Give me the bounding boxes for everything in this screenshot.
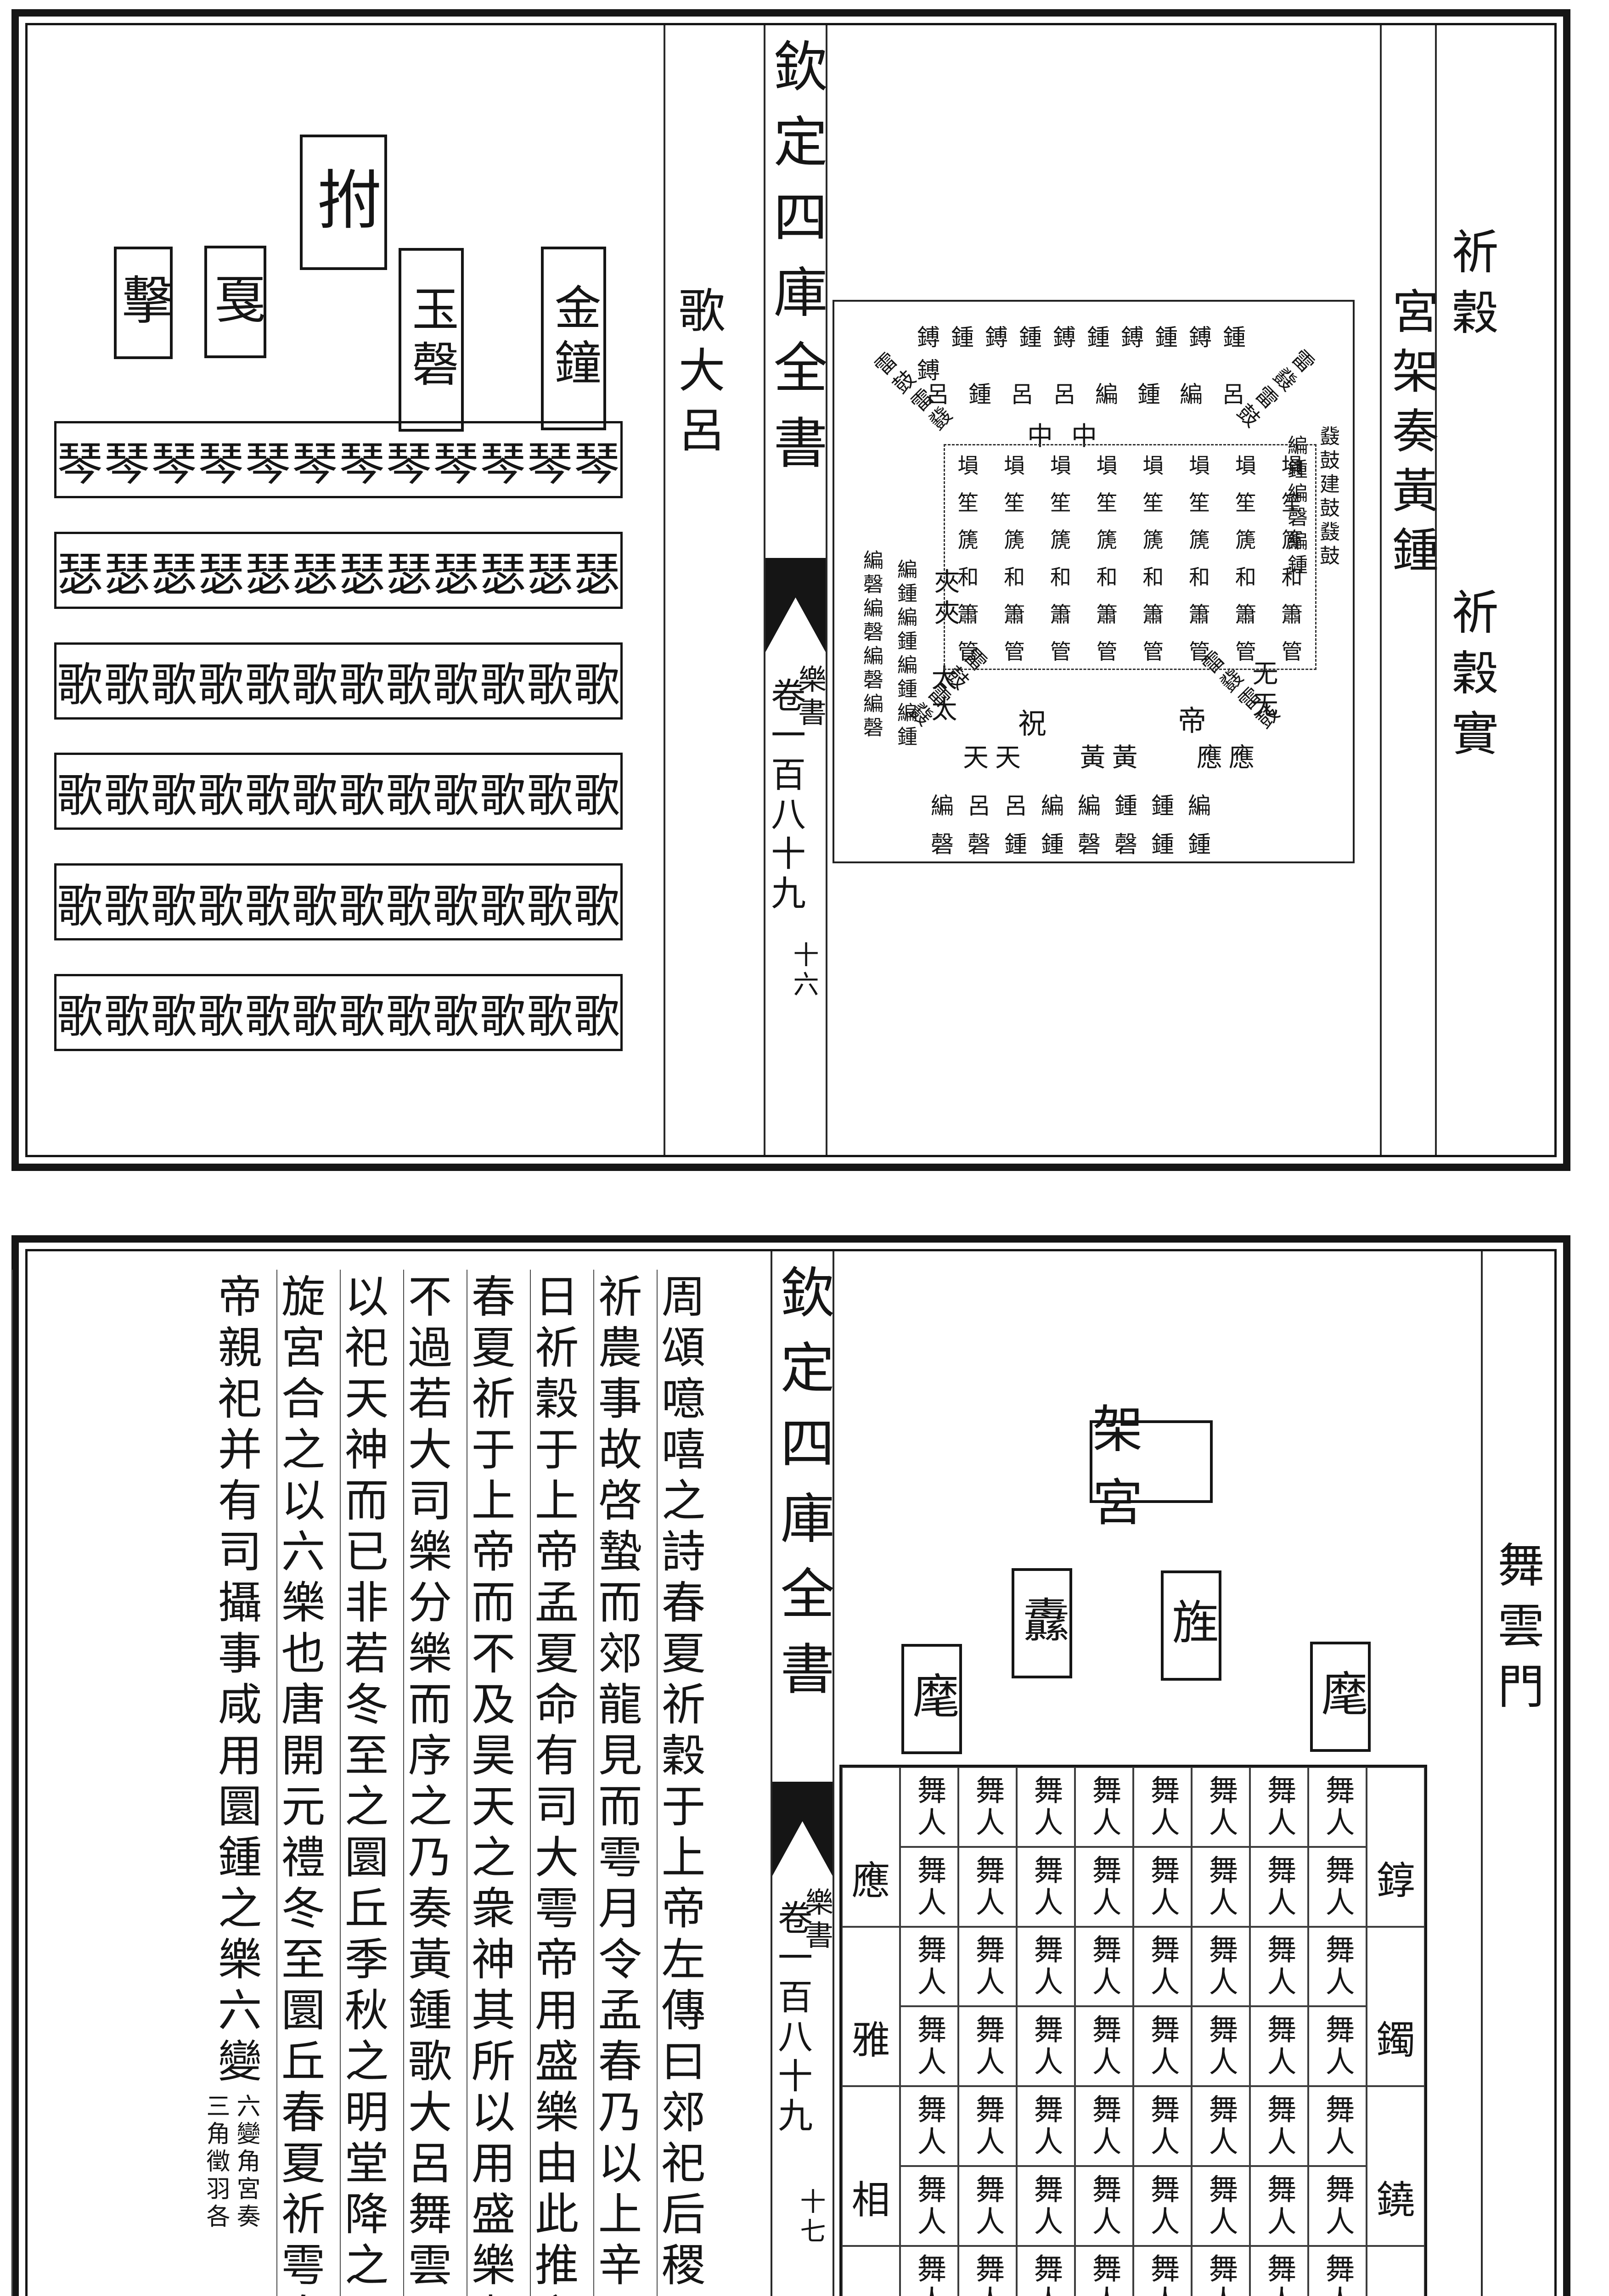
dancer-cell-text: 舞人 (1265, 2253, 1294, 2296)
spine-chapter: 卷一百八十九 (768, 677, 803, 914)
dancer-cell-text: 舞人 (1090, 1855, 1119, 1919)
text-column: 日祈穀于上帝孟夏命有司大雩帝用盛樂由此推之 (530, 1270, 593, 2296)
instrument-char: 瑟 (57, 537, 103, 603)
instrument-char: 歌 (57, 758, 103, 825)
text-column: 以祀天神而已非若冬至之圜丘季秋之明堂降之以 (340, 1270, 403, 2296)
dancer-cell-text: 舞人 (1265, 1855, 1294, 1919)
dancer-cell: 舞人 (1308, 1767, 1367, 1847)
diagram-grid-char: 笙 (957, 486, 979, 517)
instrument-char: 歌 (198, 979, 244, 1046)
diagram-grid-char: 和 (1282, 561, 1303, 591)
dancer-cell-text: 舞人 (1148, 2174, 1177, 2238)
dancer-cell-text: 舞人 (973, 2174, 1002, 2238)
dancer-cell-text: 舞人 (1090, 2174, 1119, 2238)
diagram-grid-char: 簫 (1282, 598, 1303, 628)
diagram-grid-char: 篪 (1235, 523, 1256, 554)
dancer-cell-text: 舞人 (1031, 2253, 1061, 2296)
diagram-row-text: 鎛鍾鎛鍾鎛鍾鎛鍾鎛鍾鎛 (917, 319, 1284, 385)
scanned-book-page: 祈穀 祈穀實 宮架奏黃鍾 鎛鍾鎛鍾鎛鍾鎛鍾鎛鍾鎛 呂鍾呂呂編鍾編呂 雷鼓雷鼗 雷… (0, 0, 1609, 2296)
instrument-char: 琴 (527, 427, 573, 493)
diagram-grid-char: 簫 (957, 598, 979, 628)
diagram-grid-row: 塤塤塤塤塤塤塤塤 (945, 449, 1315, 479)
diagram-bottom-row-chimes: 磬磬鍾鍾磬磬鍾鍾 (931, 826, 1279, 859)
instrument-char: 瑟 (339, 537, 385, 603)
instrument-char: 歌 (292, 979, 338, 1046)
dancer-cell-text: 舞人 (973, 2253, 1002, 2296)
instrument-char: 琴 (386, 427, 432, 493)
text-column: 旋宮合之以六樂也唐開元禮冬至圜丘春夏祈雩皇 (276, 1270, 340, 2296)
bottom-page-inner-frame: 舞雲門 架宮 麾 纛 旌 麾 應雅相牘錞鐲鐃鐸舞人舞人舞人舞人舞人舞人舞人舞人舞… (25, 1249, 1557, 2296)
dancer-cell: 舞人 (1133, 1927, 1192, 2007)
instrument-char: 琴 (151, 427, 197, 493)
flag-box-hui-right: 麾 (1310, 1642, 1371, 1752)
diagram-grid-row: 和和和和和和和和 (945, 561, 1315, 591)
diagram-grid-char: 塤 (1235, 449, 1256, 479)
instrument-char: 歌 (433, 869, 479, 935)
dancer-cell-text: 舞人 (915, 2014, 944, 2078)
flag-text: 麾 (908, 1671, 955, 1727)
diagram-grid-char: 管 (1189, 635, 1210, 665)
text-column: 春夏祈于上帝而不及昊天之衆神其所以用盛樂者 (467, 1270, 530, 2296)
dancer-cell-text: 舞人 (1090, 1934, 1119, 1998)
instrument-char: 歌 (198, 869, 244, 935)
dancer-cell: 舞人 (1250, 2006, 1308, 2086)
classical-text-columns: 周頌噫嘻之詩春夏祈穀于上帝左傳曰郊祀后稷以祈農事故啓蟄而郊龍見而雩月令孟春乃以上… (37, 1270, 720, 2296)
instrument-char: 歌 (104, 979, 150, 1046)
diagram-grid-char: 和 (1004, 561, 1025, 591)
text-column: 祈農事故啓蟄而郊龍見而雩月令孟春乃以上辛元 (593, 1270, 657, 2296)
divider-diagram-title (1380, 25, 1382, 1155)
diagram-grid-char: 塤 (1097, 449, 1118, 479)
instrument-char: 歌 (480, 758, 526, 825)
interlinear-note: 六變角宮奏三角徵羽各 (13, 2093, 258, 2231)
dancer-cell: 舞人 (1075, 2246, 1133, 2296)
dancer-cell-text: 舞人 (1031, 2094, 1061, 2158)
diagram-grid-char: 篪 (1097, 523, 1118, 554)
dancer-cell-text: 舞人 (1206, 2014, 1236, 2078)
instrument-char: 歌 (527, 869, 573, 935)
instrument-char: 歌 (574, 869, 620, 935)
diagram-grid-char: 笙 (1189, 486, 1210, 517)
grid-right-label: 鐃 (1367, 2086, 1425, 2246)
label-text: 玉磬 (408, 285, 455, 395)
diagram-grid-char: 笙 (1050, 486, 1071, 517)
dancer-cell-text: 舞人 (1323, 2253, 1352, 2296)
dancer-cell: 舞人 (1308, 2166, 1367, 2246)
instrument-char: 琴 (574, 427, 620, 493)
instrument-char: 歌 (527, 758, 573, 825)
diagram-right-drum-column: 鼗鼓建鼓鼗鼓 (1317, 426, 1338, 569)
dancer-cell: 舞人 (1192, 1847, 1250, 1927)
grid-left-label: 牘 (842, 2246, 900, 2296)
spine-page-number: 十七 (798, 2188, 823, 2247)
fishtail-mark (772, 1782, 833, 1876)
spine-page-number: 十六 (791, 941, 816, 1000)
dancer-cell-text: 舞人 (915, 1775, 944, 1839)
top-page-block: 祈穀 祈穀實 宮架奏黃鍾 鎛鍾鎛鍾鎛鍾鎛鍾鎛鍾鎛 呂鍾呂呂編鍾編呂 雷鼓雷鼗 雷… (11, 9, 1570, 1171)
dancer-cell: 舞人 (1250, 1927, 1308, 2007)
instrument-char: 歌 (198, 758, 244, 825)
diagram-row-text: 編呂呂編編鍾鍾編 (931, 788, 1225, 821)
instrument-char: 歌 (574, 979, 620, 1046)
dancer-cell: 舞人 (1192, 2166, 1250, 2246)
instrument-row-歌: 歌歌歌歌歌歌歌歌歌歌歌歌 (54, 974, 623, 1051)
instrument-char: 歌 (433, 647, 479, 714)
instrument-char: 歌 (480, 979, 526, 1046)
diagram-grid-char: 篪 (1142, 523, 1164, 554)
instrument-char: 歌 (386, 869, 432, 935)
dancer-cell: 舞人 (958, 1847, 1017, 1927)
dancer-cell: 舞人 (958, 2246, 1017, 2296)
diagram-pitch-pair: 黃黃 (1080, 737, 1144, 774)
diagram-zhu-label: 祝 (1018, 700, 1046, 742)
instrument-char: 瑟 (527, 537, 573, 603)
label-text: 金鐘 (550, 283, 597, 394)
dancer-cell-text: 舞人 (1031, 2174, 1061, 2238)
dancer-cell: 舞人 (1075, 1767, 1133, 1847)
dancer-cell-text: 舞人 (1206, 1775, 1236, 1839)
instrument-char: 歌 (292, 758, 338, 825)
instrument-char: 琴 (480, 427, 526, 493)
dancer-cell: 舞人 (1133, 2006, 1192, 2086)
grid-right-label: 錞 (1367, 1767, 1425, 1927)
label-box-yuqing: 玉磬 (399, 248, 464, 432)
instrument-char: 瑟 (198, 537, 244, 603)
instrument-char: 歌 (433, 758, 479, 825)
dancer-cell-text: 舞人 (1031, 1775, 1061, 1839)
dancer-cell-text: 舞人 (915, 2253, 944, 2296)
dancer-cell-text: 舞人 (1148, 2094, 1177, 2158)
dancer-cell: 舞人 (1075, 2086, 1133, 2166)
diagram-grid-char: 管 (1004, 635, 1025, 665)
dancer-cell-text: 舞人 (1323, 1855, 1352, 1919)
label-text: 拊 (311, 166, 376, 239)
dancer-cell-text: 舞人 (1206, 2174, 1236, 2238)
dancer-cell: 舞人 (1017, 2006, 1075, 2086)
spine-chapter: 卷一百八十九 (775, 1900, 810, 2137)
dancer-cell: 舞人 (1075, 2006, 1133, 2086)
instrument-char: 歌 (339, 869, 385, 935)
instrument-char: 瑟 (386, 537, 432, 603)
instrument-char: 歌 (245, 869, 291, 935)
dancer-cell: 舞人 (958, 2086, 1017, 2166)
dancer-cell: 舞人 (900, 2006, 958, 2086)
box-gongjia-text: 架宮 (1092, 1388, 1210, 1535)
dancer-cell-text: 舞人 (1031, 1934, 1061, 1998)
dancer-cell-text: 舞人 (915, 1855, 944, 1919)
dancer-cell-text: 舞人 (1206, 1855, 1236, 1919)
diagram-bottom-row-bells: 編呂呂編編鍾鍾編 (931, 788, 1279, 821)
dancer-cell-text: 舞人 (1031, 1855, 1061, 1919)
diagram-grid-char: 和 (1097, 561, 1118, 591)
diagram-grid-char: 和 (1050, 561, 1071, 591)
diagram-di-label: 帝 (1178, 698, 1206, 739)
margin-label-qigushi: 祈穀實 (1447, 588, 1494, 770)
instrument-char: 歌 (104, 647, 150, 714)
bottom-page-block: 舞雲門 架宮 麾 纛 旌 麾 應雅相牘錞鐲鐃鐸舞人舞人舞人舞人舞人舞人舞人舞人舞… (11, 1235, 1570, 2296)
instrument-char: 琴 (57, 427, 103, 493)
label-box-jinzhong: 金鐘 (541, 247, 606, 430)
label-box-ji: 擊 (114, 247, 173, 359)
diagram-grid-char: 管 (1235, 635, 1256, 665)
note-column: 六變角宮奏 (234, 2093, 258, 2231)
diagram-grid-char: 和 (957, 561, 979, 591)
instrument-char: 瑟 (433, 537, 479, 603)
dancer-cell-text: 舞人 (1265, 2094, 1294, 2158)
diagram-grid-char: 簫 (1097, 598, 1118, 628)
instrument-row-歌: 歌歌歌歌歌歌歌歌歌歌歌歌 (54, 753, 623, 830)
diagram-grid-char: 笙 (1097, 486, 1118, 517)
diagram-bottom-pitch-pairs: 天天黃黃應應 (963, 737, 1261, 774)
divider-right-margin (1435, 25, 1437, 1155)
diagram-grid-row: 篪篪篪篪篪篪篪篪 (945, 523, 1315, 554)
dancer-cell: 舞人 (1133, 2246, 1192, 2296)
diagram-grid-char: 笙 (1004, 486, 1025, 517)
diagram-row-text: 磬磬鍾鍾磬磬鍾鍾 (931, 826, 1225, 859)
instrument-char: 瑟 (480, 537, 526, 603)
dancer-cell: 舞人 (1192, 1767, 1250, 1847)
dancer-cell: 舞人 (1017, 2086, 1075, 2166)
dancer-cell-text: 舞人 (973, 1934, 1002, 1998)
instrument-char: 歌 (198, 647, 244, 714)
label-text: 戛 (210, 272, 261, 332)
diagram-grid-row: 簫簫簫簫簫簫簫簫 (945, 598, 1315, 628)
instrument-char: 歌 (245, 758, 291, 825)
dancer-cell: 舞人 (958, 1767, 1017, 1847)
instrument-row-歌: 歌歌歌歌歌歌歌歌歌歌歌歌 (54, 642, 623, 720)
diagram-grid-char: 管 (1142, 635, 1164, 665)
dancer-cell: 舞人 (1017, 1767, 1075, 1847)
diagram-pitch-pair: 天天 (963, 737, 1027, 774)
dancer-cell-text: 舞人 (1148, 1934, 1177, 1998)
dancer-cell: 舞人 (958, 2006, 1017, 2086)
left-page-title: 歌大呂 (674, 286, 721, 465)
dancer-cell: 舞人 (1192, 1927, 1250, 2007)
diagram-grid-char: 篪 (1282, 523, 1303, 554)
flag-text: 麾 (1317, 1669, 1364, 1724)
flag-text: 纛 (1018, 1596, 1065, 1651)
dancer-cell-text: 舞人 (1323, 2094, 1352, 2158)
dancer-cell-text: 舞人 (1265, 2014, 1294, 2078)
dancer-cell: 舞人 (1017, 1847, 1075, 1927)
grid-left-label: 相 (842, 2086, 900, 2246)
instrument-char: 歌 (292, 647, 338, 714)
dancer-cell-text: 舞人 (1148, 2014, 1177, 2078)
dancer-cell: 舞人 (900, 1847, 958, 1927)
text-column: 不過若大司樂分樂而序之乃奏黃鍾歌大呂舞雲門 (403, 1270, 467, 2296)
diagram-grid-char: 塤 (1142, 449, 1164, 479)
instrument-char: 歌 (151, 869, 197, 935)
instrument-rack-diagram: 鎛鍾鎛鍾鎛鍾鎛鍾鎛鍾鎛 呂鍾呂呂編鍾編呂 雷鼓雷鼗 雷鼗雷鼓 雷鼓雷鼗 雷鼗雷鼓… (833, 300, 1355, 863)
diagram-grid-char: 管 (1282, 635, 1303, 665)
instrument-char: 瑟 (151, 537, 197, 603)
top-page-inner-frame: 祈穀 祈穀實 宮架奏黃鍾 鎛鍾鎛鍾鎛鍾鎛鍾鎛鍾鎛 呂鍾呂呂編鍾編呂 雷鼓雷鼗 雷… (25, 23, 1557, 1157)
instrument-char: 歌 (527, 647, 573, 714)
dancer-cell-text: 舞人 (1323, 2174, 1352, 2238)
diagram-grid-char: 塤 (1282, 449, 1303, 479)
dancer-cell: 舞人 (1075, 2166, 1133, 2246)
dancer-cell-text: 舞人 (1323, 2014, 1352, 2078)
instrument-char: 歌 (104, 758, 150, 825)
dancer-cell-text: 舞人 (1090, 2094, 1119, 2158)
instrument-char: 歌 (151, 979, 197, 1046)
instrument-char: 琴 (292, 427, 338, 493)
diagram-left-bell-column: 編鍾編鍾編鍾編鍾 (895, 559, 915, 750)
note-column: 三角徵羽各 (204, 2093, 228, 2231)
dancer-cell-text: 舞人 (973, 1855, 1002, 1919)
diagram-grid-char: 和 (1235, 561, 1256, 591)
dancer-cell-text: 舞人 (1090, 1775, 1119, 1839)
spine-title: 欽定四庫全書 (769, 38, 823, 490)
dancer-cell: 舞人 (1308, 1847, 1367, 1927)
margin-label-qigu: 祈穀 (1447, 227, 1494, 349)
instrument-row-瑟: 瑟瑟瑟瑟瑟瑟瑟瑟瑟瑟瑟瑟 (54, 532, 623, 609)
diagram-grid-row: 管管管管管管管管 (945, 635, 1315, 665)
dancer-cell-text: 舞人 (1323, 1775, 1352, 1839)
instrument-char: 瑟 (245, 537, 291, 603)
diagram-grid-char: 管 (1050, 635, 1071, 665)
dancer-cell: 舞人 (1017, 2166, 1075, 2246)
dancer-cell: 舞人 (1308, 1927, 1367, 2007)
diagram-grid-char: 簫 (1189, 598, 1210, 628)
instrument-row-歌: 歌歌歌歌歌歌歌歌歌歌歌歌 (54, 863, 623, 940)
dancer-cell: 舞人 (1250, 1847, 1308, 1927)
dancer-cell: 舞人 (900, 1927, 958, 2007)
instrument-rows: 琴琴琴琴琴琴琴琴琴琴琴琴瑟瑟瑟瑟瑟瑟瑟瑟瑟瑟瑟瑟歌歌歌歌歌歌歌歌歌歌歌歌歌歌歌歌… (54, 421, 623, 1051)
diagram-grid-char: 簫 (1142, 598, 1164, 628)
flag-box-dao: 纛 (1012, 1568, 1072, 1678)
instrument-char: 歌 (433, 979, 479, 1046)
label-box-jia: 戛 (204, 246, 266, 358)
instrument-char: 歌 (339, 758, 385, 825)
instrument-char: 瑟 (104, 537, 150, 603)
dancer-cell: 舞人 (1075, 1927, 1133, 2007)
dancer-cell: 舞人 (958, 2166, 1017, 2246)
instrument-char: 歌 (245, 647, 291, 714)
dancer-cell-text: 舞人 (1090, 2014, 1119, 2078)
dancer-cell: 舞人 (1250, 1767, 1308, 1847)
diagram-grid-char: 塤 (1004, 449, 1025, 479)
instrument-char: 琴 (245, 427, 291, 493)
instrument-char: 歌 (57, 869, 103, 935)
diagram-grid-char: 塤 (1050, 449, 1071, 479)
dancer-cell: 舞人 (1017, 2246, 1075, 2296)
diagram-grid-char: 篪 (1050, 523, 1071, 554)
instrument-char: 歌 (386, 758, 432, 825)
divider-left-title (664, 25, 665, 1155)
dancer-cell: 舞人 (900, 1767, 958, 1847)
grid-right-label: 鐲 (1367, 1927, 1425, 2087)
instrument-char: 歌 (480, 647, 526, 714)
dancer-cell: 舞人 (1250, 2086, 1308, 2166)
diagram-left-pitch-lower: 太太 (929, 664, 955, 727)
instrument-char: 歌 (245, 979, 291, 1046)
dancer-cell-text: 舞人 (915, 2094, 944, 2158)
dancer-cell-text: 舞人 (915, 1934, 944, 1998)
diagram-grid-row: 笙笙笙笙笙笙笙笙 (945, 486, 1315, 517)
flag-text: 旌 (1168, 1598, 1215, 1653)
divider-right-margin (1481, 1251, 1483, 2296)
instrument-char: 歌 (339, 979, 385, 1046)
flag-box-jing: 旌 (1161, 1570, 1221, 1681)
dancer-cell: 舞人 (1133, 2086, 1192, 2166)
text-column: 帝親祀并有司攝事咸用圜鍾之樂六變六變角宮奏三角徵羽各 (12, 1270, 276, 2296)
instrument-char: 歌 (57, 979, 103, 1046)
grid-left-label: 應 (842, 1767, 900, 1927)
dancer-cell: 舞人 (1250, 2246, 1308, 2296)
dancer-cell: 舞人 (1192, 2006, 1250, 2086)
instrument-char: 歌 (386, 979, 432, 1046)
dancer-cell-text: 舞人 (1148, 2253, 1177, 2296)
dancer-cell: 舞人 (1250, 2166, 1308, 2246)
dancer-cell-text: 舞人 (1206, 2253, 1236, 2296)
margin-label-wuyunmen: 舞雲門 (1493, 1541, 1540, 1722)
diagram-grid-char: 管 (957, 635, 979, 665)
label-box-fu: 拊 (300, 135, 387, 270)
dancer-cell-text: 舞人 (1265, 2174, 1294, 2238)
instrument-char: 歌 (574, 758, 620, 825)
diagram-grid-char: 塤 (1189, 449, 1210, 479)
dancer-cell: 舞人 (900, 2086, 958, 2166)
dancer-cell: 舞人 (1308, 2006, 1367, 2086)
flag-box-hui-left: 麾 (901, 1644, 962, 1754)
dancer-cell: 舞人 (900, 2246, 958, 2296)
dancer-cell: 舞人 (1133, 2166, 1192, 2246)
label-text: 擊 (118, 273, 169, 333)
diagram-top-row-bells: 鎛鍾鎛鍾鎛鍾鎛鍾鎛鍾鎛 (917, 319, 1284, 385)
diagram-grid-char: 笙 (1142, 486, 1164, 517)
instrument-char: 歌 (151, 647, 197, 714)
diagram-title: 宮架奏黃鍾 (1388, 287, 1435, 585)
instrument-char: 琴 (339, 427, 385, 493)
dancer-cell-text: 舞人 (1031, 2014, 1061, 2078)
spine-title: 欽定四庫全書 (776, 1264, 830, 1716)
dancer-cell-text: 舞人 (1148, 1775, 1177, 1839)
diagram-grid-char: 和 (1189, 561, 1210, 591)
dancer-cell: 舞人 (1308, 2086, 1367, 2166)
instrument-char: 歌 (339, 647, 385, 714)
diagram-grid-char: 笙 (1235, 486, 1256, 517)
box-gongjia: 架宮 (1090, 1420, 1213, 1503)
diagram-grid-char: 篪 (957, 523, 979, 554)
diagram-grid-char: 篪 (1189, 523, 1210, 554)
grid-left-label: 雅 (842, 1927, 900, 2087)
instrument-char: 歌 (57, 647, 103, 714)
instrument-char: 歌 (480, 869, 526, 935)
diagram-grid-char: 簫 (1050, 598, 1071, 628)
dancer-cell-text: 舞人 (1148, 1855, 1177, 1919)
diagram-row-text: 呂鍾呂呂編鍾編呂 (926, 376, 1264, 409)
dancer-cell-text: 舞人 (1323, 1934, 1352, 1998)
dancer-cell: 舞人 (1133, 1847, 1192, 1927)
diagram-top-row-lv: 呂鍾呂呂編鍾編呂 (926, 376, 1275, 409)
fishtail-mark (765, 558, 826, 652)
instrument-char: 歌 (151, 758, 197, 825)
dancer-cell-text: 舞人 (915, 2174, 944, 2238)
instrument-char: 歌 (104, 869, 150, 935)
diagram-pitch-pair: 應應 (1197, 737, 1261, 774)
instrument-char: 瑟 (574, 537, 620, 603)
dancer-cell: 舞人 (1192, 2246, 1250, 2296)
diagram-grid-char: 簫 (1235, 598, 1256, 628)
dancer-cell-text: 舞人 (973, 2094, 1002, 2158)
dancer-formation-grid: 應雅相牘錞鐲鐃鐸舞人舞人舞人舞人舞人舞人舞人舞人舞人舞人舞人舞人舞人舞人舞人舞人… (839, 1765, 1427, 2296)
dancer-cell: 舞人 (1017, 1927, 1075, 2007)
dancer-cell: 舞人 (1075, 1847, 1133, 1927)
dancer-cell-text: 舞人 (1090, 2253, 1119, 2296)
dancer-cell-text: 舞人 (973, 1775, 1002, 1839)
diagram-grid-char: 簫 (1004, 598, 1025, 628)
